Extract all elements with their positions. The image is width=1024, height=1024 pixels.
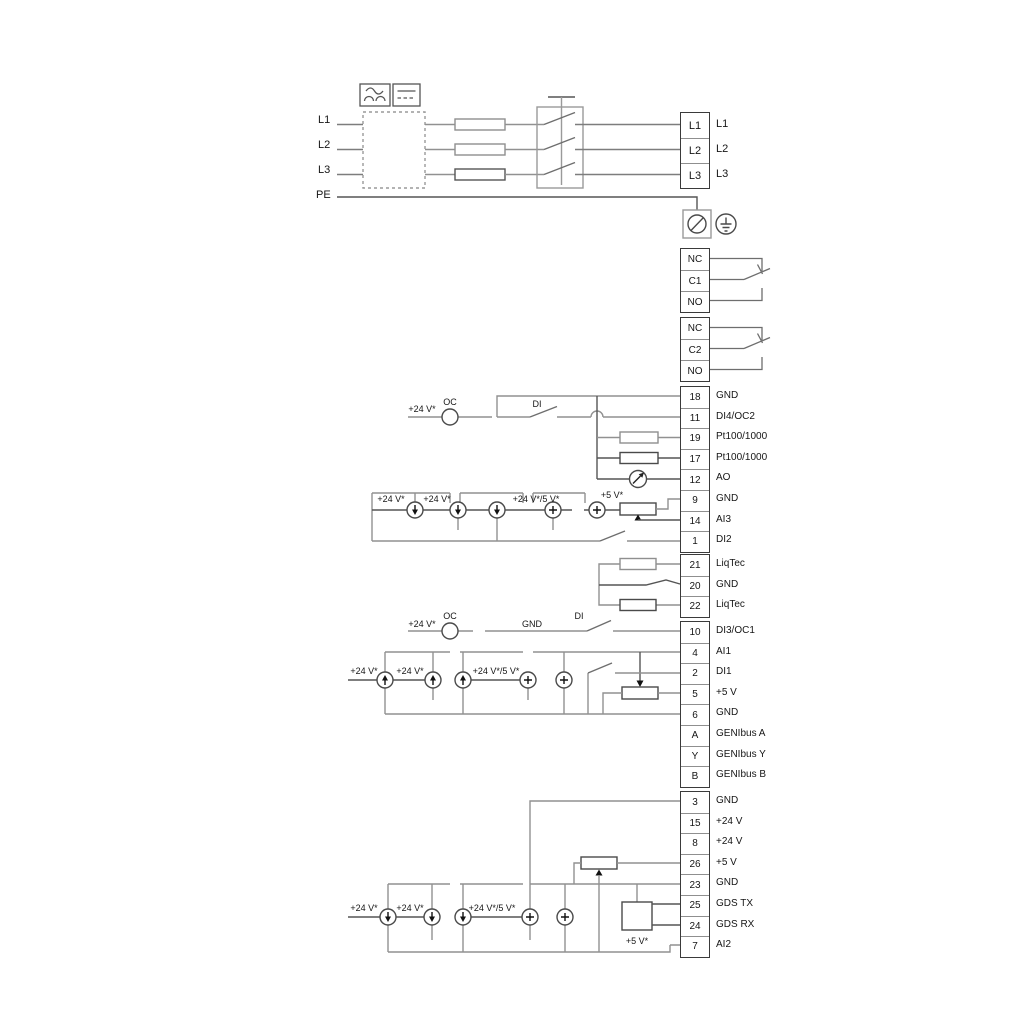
ac-icon [360, 84, 390, 106]
io-low-labels: GND+24 V+24 V+5 VGNDGDS TXGDS RXAI2 [716, 791, 754, 956]
io-mid-terminal-block: 104256AYB [680, 621, 710, 788]
fuse-l3 [455, 169, 505, 180]
terminal-row: 23 [681, 874, 709, 895]
wiring-svg [0, 0, 1024, 1024]
terminal-number: 7 [692, 941, 698, 952]
io-upper-terminal-block: 18111917129141 [680, 386, 710, 553]
terminal-label: +24 V [716, 812, 754, 833]
label-plus24v-5v: +24 V*/5 V* [473, 666, 520, 676]
ai2-gds-options [348, 801, 680, 952]
label-oc: OC [443, 397, 457, 407]
terminal-row: 19 [681, 428, 709, 449]
terminal-label: Pt100/1000 [716, 448, 767, 469]
terminal-row: 5 [681, 684, 709, 705]
terminal-number: 9 [692, 495, 698, 506]
label-gnd: GND [522, 619, 542, 629]
terminal-label: AI3 [716, 510, 767, 531]
terminal-row: C2 [681, 339, 709, 360]
terminal-label: L3 [716, 162, 728, 187]
pt100-resistor-2 [620, 453, 658, 464]
io-mid-labels: DI3/OC1AI1DI1+5 VGNDGENIbus AGENIbus YGE… [716, 621, 766, 786]
liqtec-resistor-2 [620, 600, 656, 611]
terminal-row: NO [681, 360, 709, 381]
terminal-number: Y [692, 751, 699, 762]
ai1-potentiometer [622, 687, 658, 699]
terminal-number: 3 [692, 797, 698, 808]
dc-icon [393, 84, 420, 106]
mains-out-labels: L1L2L3 [716, 112, 728, 187]
terminal-row: NC [681, 318, 709, 339]
label-plus24v: +24 V* [408, 404, 435, 414]
terminal-number: 6 [692, 710, 698, 721]
terminal-row: 22 [681, 596, 709, 617]
terminal-row: L3 [681, 163, 709, 188]
terminal-row: 3 [681, 792, 709, 813]
terminal-number: 10 [689, 627, 700, 638]
wiring-diagram: L1 L2 L3 PE L1L2L3 L1L2L3 NCC1NO NCC2NO … [0, 0, 1024, 1024]
relay2-contact [710, 328, 770, 370]
label-oc: OC [443, 611, 457, 621]
terminal-label: DI2 [716, 530, 767, 551]
terminal-row: 1 [681, 531, 709, 552]
label-plus24v: +24 V* [423, 494, 450, 504]
terminal-row: 9 [681, 490, 709, 511]
terminal-number: 15 [689, 818, 700, 829]
terminal-label: L2 [716, 137, 728, 162]
main-switch-blades [544, 113, 575, 175]
terminal-label: LiqTec [716, 554, 745, 575]
terminal-row: 4 [681, 643, 709, 664]
mains-in-label-l2: L2 [318, 139, 330, 151]
terminal-row: 24 [681, 916, 709, 937]
fuse-l2 [455, 144, 505, 155]
fuse-l1 [455, 119, 505, 130]
di3-wiring [408, 621, 680, 640]
terminal-row: 7 [681, 936, 709, 957]
terminal-number: 14 [689, 516, 700, 527]
terminal-label: GENIbus B [716, 765, 766, 786]
terminal-label: DI3/OC1 [716, 621, 766, 642]
terminal-number: 21 [689, 560, 700, 571]
terminal-row: 14 [681, 511, 709, 532]
terminal-number: 11 [690, 413, 700, 424]
terminal-label: GND [716, 703, 766, 724]
terminal-text: NC [688, 323, 702, 334]
relay1-contact [710, 259, 770, 301]
open-collector-icon [442, 409, 458, 425]
terminal-label: GDS RX [716, 915, 754, 936]
terminal-row: NC [681, 249, 709, 270]
pe-wire [337, 197, 697, 210]
terminal-row: NO [681, 291, 709, 312]
terminal-number: 1 [692, 536, 698, 547]
terminal-label: GND [716, 873, 754, 894]
mains-in-label-l3: L3 [318, 164, 330, 176]
terminal-label: AI1 [716, 642, 766, 663]
terminal-text: NO [688, 366, 703, 377]
liqtec-terminal-block: 212022 [680, 554, 710, 618]
label-plus24v: +24 V* [350, 666, 377, 676]
terminal-number: 5 [692, 689, 698, 700]
terminal-label: +5 V [716, 853, 754, 874]
terminal-number: 26 [689, 859, 700, 870]
ai2-potentiometer [581, 857, 617, 869]
di3-switch-blade [587, 621, 611, 632]
terminal-text: NO [688, 297, 703, 308]
terminal-row: 6 [681, 704, 709, 725]
terminal-number: A [692, 730, 699, 741]
relay1-terminal-block: NCC1NO [680, 248, 710, 313]
terminal-number: 19 [689, 433, 700, 444]
liqtec-labels: LiqTecGNDLiqTec [716, 554, 745, 616]
terminal-label: GND [716, 791, 754, 812]
terminal-row: A [681, 725, 709, 746]
terminal-text: C1 [689, 276, 702, 287]
di2-switch-blade [600, 531, 625, 541]
terminal-text: L1 [689, 120, 701, 132]
main-switch-box [537, 107, 583, 188]
liqtec-wiring [599, 559, 680, 611]
terminal-text: C2 [689, 345, 702, 356]
io-upper-labels: GNDDI4/OC2Pt100/1000Pt100/1000AOGNDAI3DI… [716, 386, 767, 551]
terminal-label: GND [716, 575, 745, 596]
terminal-row: 11 [681, 408, 709, 429]
terminal-label: GND [716, 386, 767, 407]
terminal-label: GND [716, 489, 767, 510]
mains-wiring [337, 97, 697, 210]
io-upper-wiring [408, 396, 680, 488]
terminal-row: 15 [681, 813, 709, 834]
terminal-label: +5 V [716, 683, 766, 704]
liqtec-resistor-1 [620, 559, 656, 570]
terminal-label: GENIbus A [716, 724, 766, 745]
terminal-number: 25 [689, 900, 700, 911]
terminal-row: 25 [681, 895, 709, 916]
terminal-number: 8 [692, 838, 698, 849]
terminal-number: 18 [689, 392, 700, 403]
filter-box [363, 112, 425, 188]
terminal-number: 22 [689, 601, 700, 612]
label-plus5v: +5 V* [601, 490, 623, 500]
terminal-row: B [681, 766, 709, 787]
terminal-label: Pt100/1000 [716, 427, 767, 448]
terminal-row: 26 [681, 854, 709, 875]
terminal-number: B [692, 771, 699, 782]
terminal-row: 18 [681, 387, 709, 408]
label-plus24v-5v: +24 V*/5 V* [513, 494, 560, 504]
label-plus24v: +24 V* [377, 494, 404, 504]
terminal-label: GDS TX [716, 894, 754, 915]
terminal-row: 21 [681, 555, 709, 576]
terminal-row: 12 [681, 469, 709, 490]
terminal-label: AI2 [716, 935, 754, 956]
di1-switch-blade [588, 663, 612, 673]
terminal-text: L2 [689, 145, 701, 157]
terminal-row: L2 [681, 138, 709, 163]
terminal-label: LiqTec [716, 595, 745, 616]
ground-terminals [683, 210, 736, 238]
gds-sensor-box [622, 902, 652, 930]
open-collector-icon [442, 623, 458, 639]
terminal-row: Y [681, 746, 709, 767]
label-plus24v: +24 V* [408, 619, 435, 629]
terminal-label: AO [716, 468, 767, 489]
terminal-row: 10 [681, 622, 709, 643]
terminal-label: GENIbus Y [716, 745, 766, 766]
terminal-number: 17 [689, 454, 700, 465]
terminal-row: 20 [681, 576, 709, 597]
terminal-label: L1 [716, 112, 728, 137]
terminal-text: NC [688, 254, 702, 265]
mains-in-label-pe: PE [316, 189, 331, 201]
ai1-sensor-options [348, 652, 680, 714]
terminal-number: 12 [689, 475, 700, 486]
terminal-row: 17 [681, 449, 709, 470]
terminal-row: L1 [681, 113, 709, 138]
terminal-number: 4 [692, 648, 698, 659]
mains-out-terminal-block: L1L2L3 [680, 112, 710, 189]
mains-in-label-l1: L1 [318, 114, 330, 126]
pt100-resistor-1 [620, 432, 658, 443]
terminal-number: 23 [689, 880, 700, 891]
relay2-terminal-block: NCC2NO [680, 317, 710, 382]
io-low-terminal-block: 3158262325247 [680, 791, 710, 958]
label-plus24v: +24 V* [350, 903, 377, 913]
ai3-potentiometer [620, 503, 656, 515]
terminal-row: 8 [681, 833, 709, 854]
label-plus24v-5v: +24 V*/5 V* [469, 903, 516, 913]
terminal-number: 24 [689, 921, 700, 932]
terminal-number: 2 [692, 668, 698, 679]
terminal-row: C1 [681, 270, 709, 291]
terminal-row: 2 [681, 663, 709, 684]
terminal-number: 20 [689, 581, 700, 592]
label-plus5v-gds: +5 V* [626, 936, 648, 946]
label-di: DI [533, 399, 542, 409]
label-di: DI [575, 611, 584, 621]
terminal-text: L3 [689, 170, 701, 182]
terminal-label: +24 V [716, 832, 754, 853]
terminal-label: DI4/OC2 [716, 407, 767, 428]
label-plus24v: +24 V* [396, 903, 423, 913]
terminal-label: DI1 [716, 662, 766, 683]
label-plus24v: +24 V* [396, 666, 423, 676]
